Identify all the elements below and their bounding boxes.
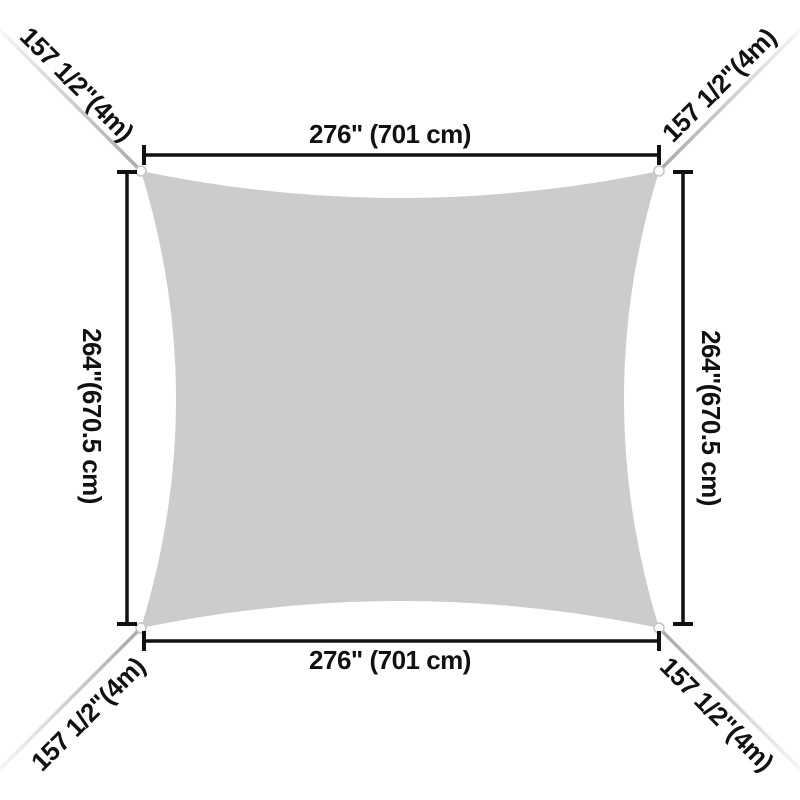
rope-top-right-line [659,25,800,171]
rope-label-top-right: 157 1/2"(4m) [656,22,782,148]
shade-sail-shape [141,171,659,628]
corner-ring-top-left [136,166,146,176]
dimension-label-bottom: 276" (701 cm) [309,645,471,675]
dimension-label-left: 264"(670.5 cm) [77,328,107,504]
rope-label-top-left: 157 1/2"(4m) [14,21,140,147]
rope-label-bottom-right: 157 1/2"(4m) [654,651,780,777]
dimension-label-top: 276" (701 cm) [309,119,471,149]
rope-label-bottom-left: 157 1/2"(4m) [25,651,151,777]
rope-bottom-right-line [659,628,800,774]
product-dimension-diagram: 276" (701 cm) 276" (701 cm) 264"(670.5 c… [0,0,800,800]
diagram-canvas: 276" (701 cm) 276" (701 cm) 264"(670.5 c… [0,0,800,800]
dimension-label-right: 264"(670.5 cm) [696,330,726,506]
corner-ring-top-right [654,166,664,176]
